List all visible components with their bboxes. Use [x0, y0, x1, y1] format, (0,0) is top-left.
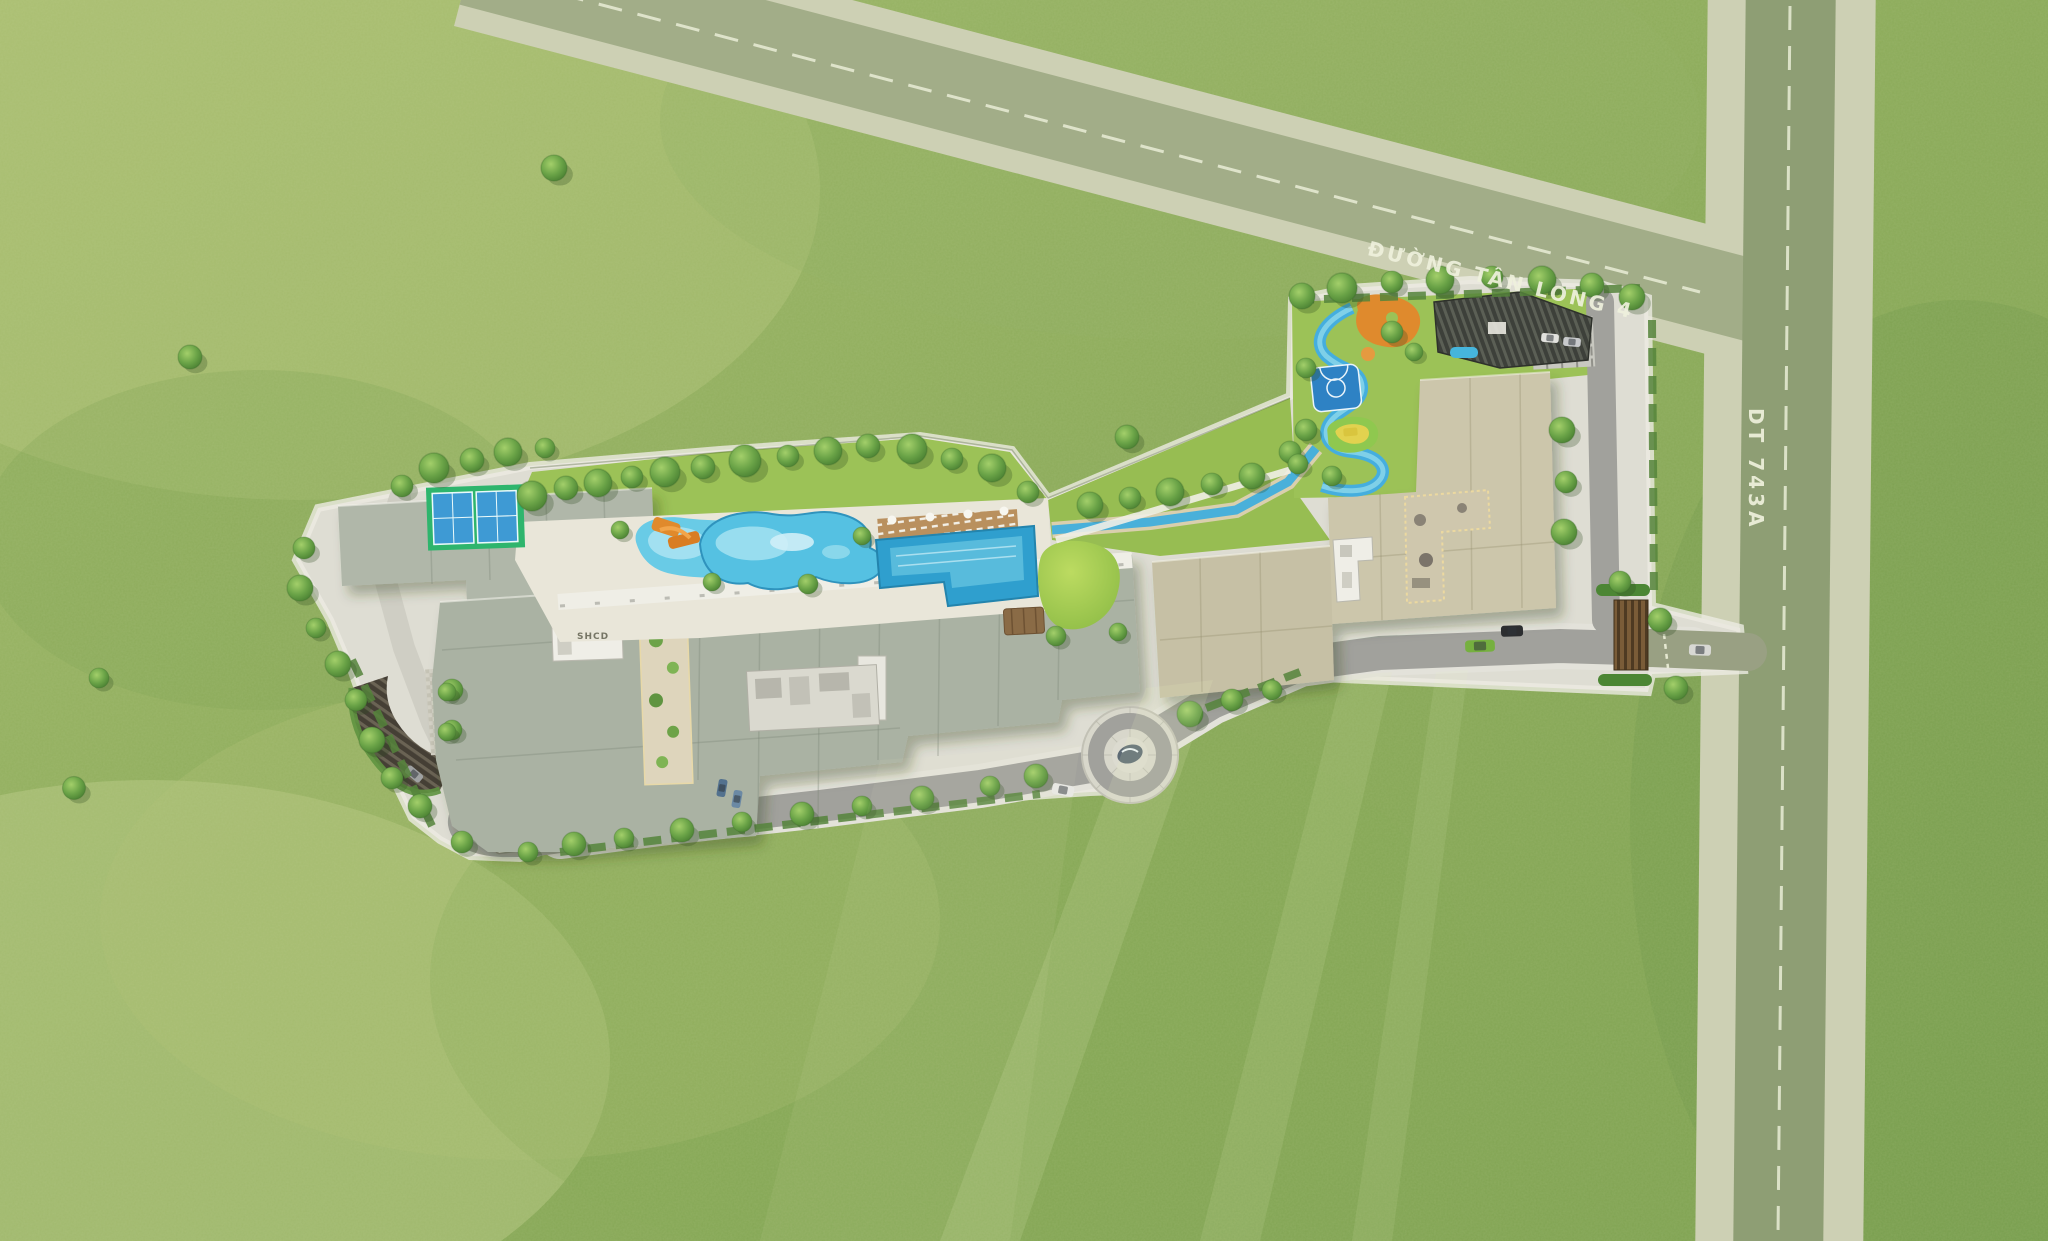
- garden-pavilion: [1003, 607, 1044, 635]
- road-dt-743a: [1778, 0, 1791, 1241]
- black-car: [1501, 625, 1523, 637]
- lagoon-pool: [700, 512, 882, 589]
- tennis-court: [426, 484, 525, 550]
- silver-car: [1689, 644, 1711, 656]
- spa-pool: [1450, 347, 1478, 358]
- green-shuttle: [1465, 639, 1495, 652]
- masterplan-canvas: [0, 0, 2048, 1241]
- parked-car-3: [1541, 333, 1559, 343]
- courtyard-spine: [639, 615, 693, 785]
- rooftop-core-center: [747, 665, 880, 732]
- parked-car-4: [1563, 337, 1581, 347]
- rooftop-label-shcd: SHCD: [577, 632, 609, 642]
- road-label-dt-743a: DT 743A: [1744, 408, 1768, 530]
- east-block-sw-wing: [1152, 546, 1334, 698]
- masterplan-aerial-view: ĐƯỜNG TÂN LONG 4 DT 743A SHCD: [0, 0, 2048, 1241]
- east-service-road: [1600, 302, 1606, 620]
